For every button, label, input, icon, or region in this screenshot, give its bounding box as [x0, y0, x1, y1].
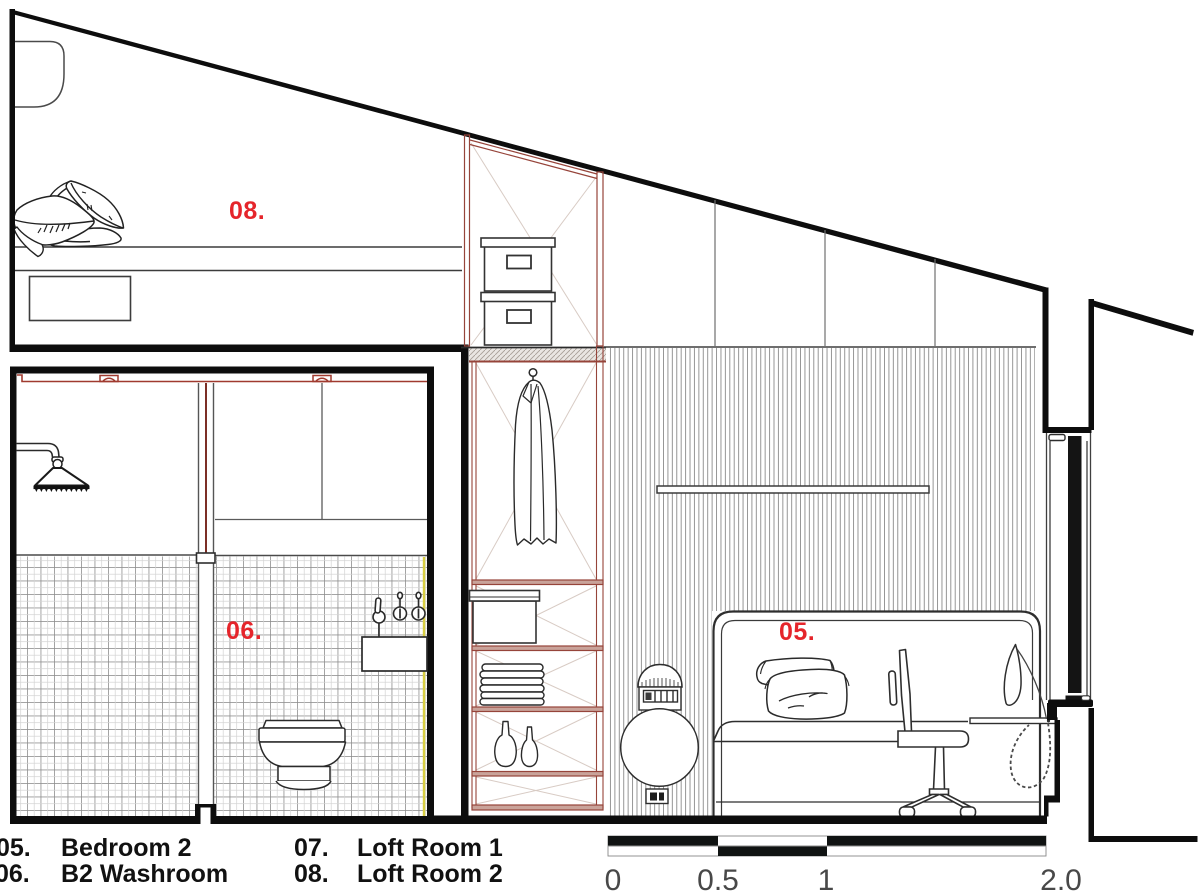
svg-text:B2 Washroom: B2 Washroom [61, 860, 228, 888]
svg-text:Loft Room 2: Loft Room 2 [357, 860, 503, 888]
svg-text:0: 0 [605, 864, 622, 896]
svg-text:05.: 05. [779, 618, 815, 646]
svg-text:06.: 06. [0, 860, 30, 888]
svg-text:Bedroom 2: Bedroom 2 [61, 834, 192, 862]
svg-text:05.: 05. [0, 834, 31, 862]
svg-text:Loft Room 1: Loft Room 1 [357, 834, 503, 862]
svg-text:1: 1 [818, 864, 835, 896]
svg-text:06.: 06. [226, 617, 262, 645]
svg-text:2.0: 2.0 [1040, 864, 1082, 896]
svg-text:07.: 07. [294, 834, 329, 862]
svg-text:0.5: 0.5 [697, 864, 739, 896]
svg-text:08.: 08. [229, 197, 265, 225]
svg-text:08.: 08. [294, 860, 329, 888]
